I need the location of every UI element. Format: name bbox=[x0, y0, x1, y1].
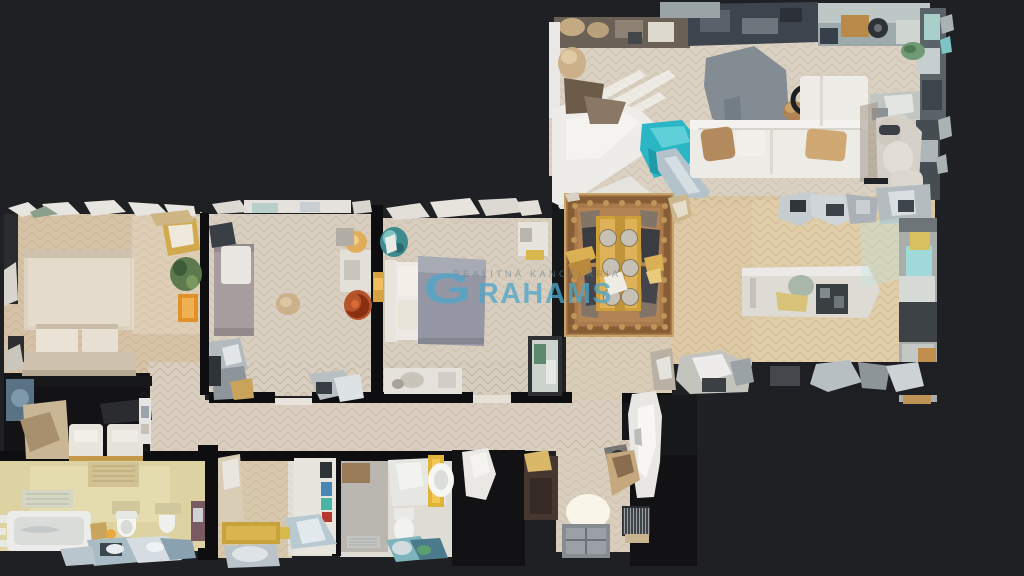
svg-text:G: G bbox=[423, 265, 471, 312]
svg-text:RAHAMS: RAHAMS bbox=[478, 278, 613, 310]
